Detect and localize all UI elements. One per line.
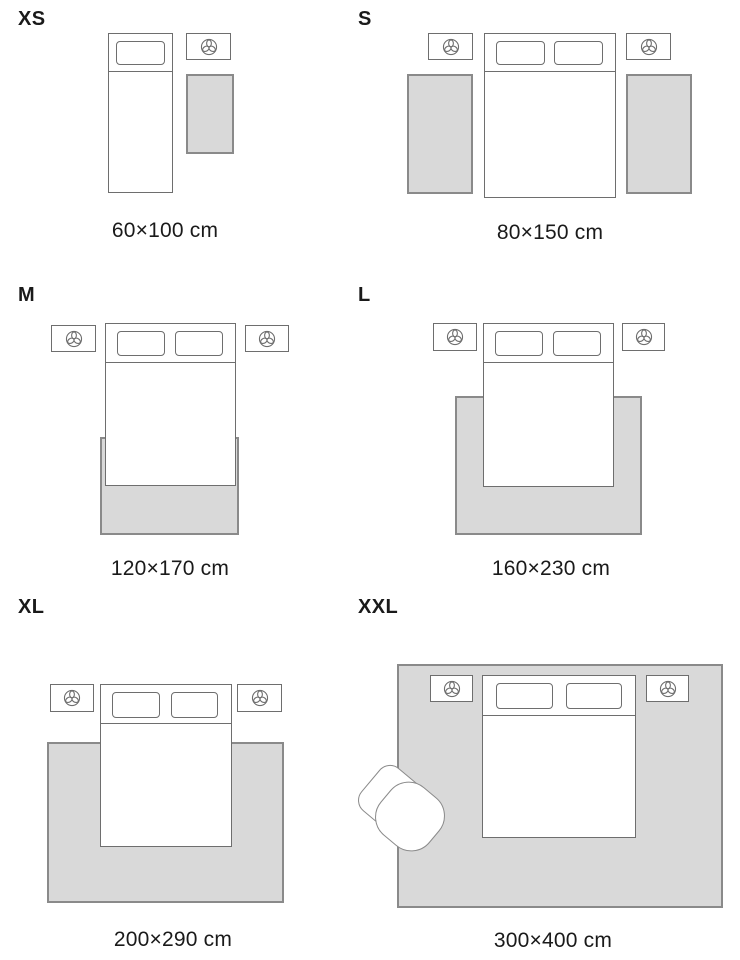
plant-icon [440, 36, 462, 58]
pillow [175, 331, 223, 356]
plant-icon [61, 687, 83, 709]
single-bed [108, 33, 173, 193]
nightstand-left [430, 675, 473, 702]
size-label-s: S [358, 9, 372, 29]
double-bed [100, 684, 232, 847]
plant-icon [256, 328, 278, 350]
size-label-xxl: XXL [358, 597, 398, 617]
double-bed [105, 323, 236, 486]
plant-icon [444, 326, 466, 348]
nightstand-left [428, 33, 473, 60]
nightstand-right [237, 684, 282, 712]
rug-left [407, 74, 473, 194]
pillow [495, 331, 543, 356]
pillow [496, 41, 545, 65]
nightstand-right [626, 33, 671, 60]
nightstand-left [50, 684, 94, 712]
plant-icon [633, 326, 655, 348]
pillow [553, 331, 601, 356]
pillow [171, 692, 218, 718]
rug [186, 74, 234, 154]
plant-icon [249, 687, 271, 709]
nightstand-right [622, 323, 665, 351]
pillow [496, 683, 553, 709]
dimension-label-xs: 60×100 cm [15, 220, 315, 241]
nightstand-right [245, 325, 289, 352]
dimension-label-xl: 200×290 cm [23, 929, 323, 950]
rug-size-guide: XS 60×100 cm S [0, 0, 740, 960]
size-label-xl: XL [18, 597, 44, 617]
dimension-label-xxl: 300×400 cm [403, 930, 703, 951]
dimension-label-m: 120×170 cm [20, 558, 320, 579]
pillow [116, 41, 165, 65]
size-label-l: L [358, 285, 371, 305]
plant-icon [441, 678, 463, 700]
double-bed [482, 675, 636, 838]
nightstand-left [51, 325, 96, 352]
size-label-m: M [18, 285, 35, 305]
nightstand-left [433, 323, 477, 351]
dimension-label-s: 80×150 cm [400, 222, 700, 243]
pillow [112, 692, 160, 718]
double-bed [484, 33, 616, 198]
plant-icon [638, 36, 660, 58]
plant-icon [657, 678, 679, 700]
pillow [566, 683, 622, 709]
double-bed [483, 323, 614, 487]
nightstand-right [646, 675, 689, 702]
plant-icon [63, 328, 85, 350]
dimension-label-l: 160×230 cm [401, 558, 701, 579]
size-label-xs: XS [18, 9, 45, 29]
nightstand [186, 33, 231, 60]
plant-icon [198, 36, 220, 58]
rug-right [626, 74, 692, 194]
pillow [117, 331, 165, 356]
pillow [554, 41, 603, 65]
